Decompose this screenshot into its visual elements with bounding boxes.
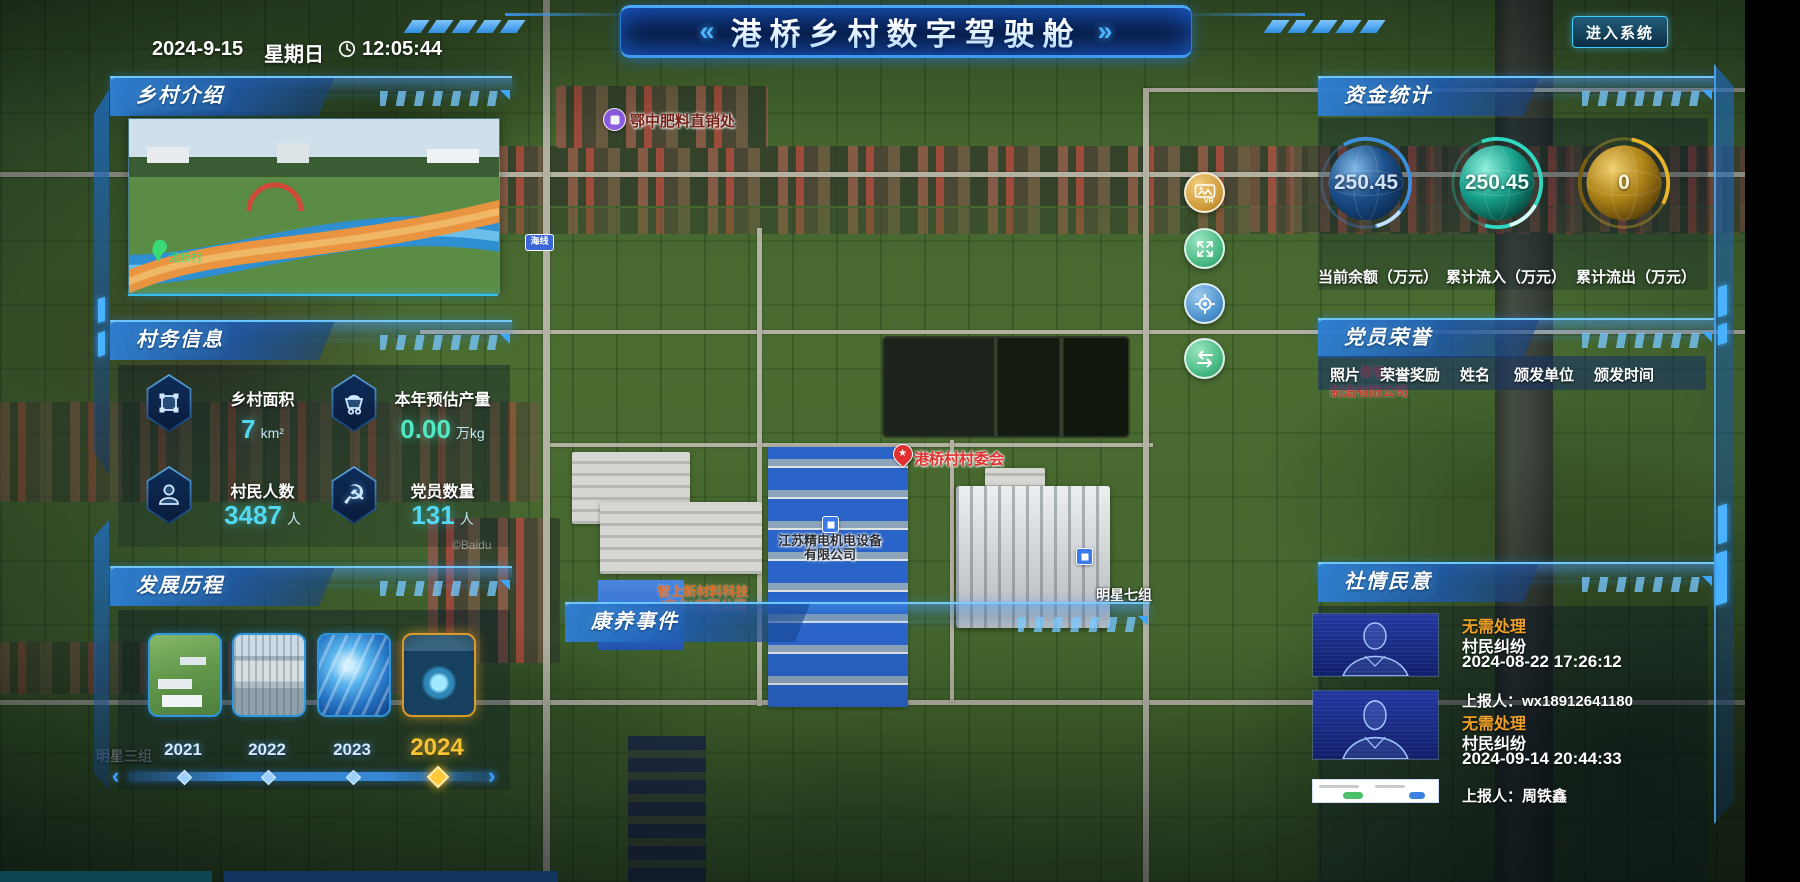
stat-value: 0.00万kg	[360, 414, 525, 445]
gauge-value: 0	[1576, 135, 1672, 231]
panel-title: 社情民意	[1318, 564, 1540, 600]
map-label-village-committee: 港桥村村委会	[914, 448, 1004, 469]
vr-panorama-button[interactable]: VR	[1184, 172, 1225, 213]
stat-value: 3487人	[180, 500, 345, 531]
frame-accent	[1718, 504, 1727, 545]
stat-value: 131人	[360, 500, 525, 531]
photo-location-label: 港桥村	[169, 250, 202, 264]
left-frame-decoration	[94, 90, 109, 475]
stat-unit: 人	[287, 511, 301, 527]
gauge-label-outflow: 累计流出（万元）	[1576, 266, 1696, 287]
scanline-overlay	[1313, 614, 1438, 676]
header-main: 党员荣誉	[1318, 318, 1540, 358]
gauge-current-balance: 250.45	[1318, 135, 1414, 231]
header-corner-decoration	[1138, 616, 1148, 626]
opinion-time: 2024-09-14 20:44:33	[1462, 749, 1622, 769]
opinion-item-photo-webpage[interactable]	[1312, 779, 1439, 803]
column-issuer: 颁发单位	[1514, 364, 1574, 385]
banner-wing-left	[408, 20, 521, 33]
column-issue-date: 颁发时间	[1594, 364, 1654, 385]
title-banner: « 港桥乡村数字驾驶舱 »	[620, 5, 1192, 58]
panel-header-development: 发展历程	[110, 566, 512, 604]
switch-refresh-button[interactable]	[1184, 338, 1225, 379]
map-road	[1143, 88, 1149, 882]
header-main: 乡村介绍	[110, 76, 335, 116]
header-main: 发展历程	[110, 566, 335, 606]
header-stripes-decoration	[380, 581, 498, 596]
swap-arrows-icon	[1195, 349, 1215, 369]
timeline-next-arrow[interactable]: ›	[488, 766, 495, 786]
header-stripes-decoration	[380, 335, 498, 350]
banner-line-left	[505, 13, 635, 16]
person-icon	[155, 481, 183, 509]
frame-accent	[1718, 285, 1727, 318]
company-line1: 智上新材料科技	[657, 584, 748, 599]
map-road	[950, 440, 954, 702]
svg-text:VR: VR	[1204, 198, 1214, 204]
current-time: 12:05:44	[362, 38, 442, 61]
column-photo: 照片	[1330, 364, 1360, 385]
frame-accent	[98, 297, 105, 323]
panel-title: 乡村介绍	[110, 78, 335, 114]
map-building	[985, 468, 1045, 488]
vr-picture-icon: VR	[1194, 182, 1216, 204]
header-corner-decoration	[1702, 576, 1712, 586]
clock-icon	[338, 40, 356, 58]
panel-header-public-opinion: 社情民意	[1318, 562, 1714, 600]
opinion-item-photo[interactable]	[1312, 613, 1439, 677]
header-corner-decoration	[500, 90, 510, 100]
opinion-item-photo[interactable]	[1312, 690, 1439, 760]
expand-arrows-icon	[1195, 239, 1215, 259]
map-label-fertilizer-shop: 鄂中肥料直销处	[630, 110, 735, 131]
gauge-total-inflow: 250.45	[1449, 135, 1545, 231]
header-corner-decoration	[500, 580, 510, 590]
honor-table-header-row: 照片 荣誉奖励 姓名 颁发单位 颁发时间	[1318, 356, 1706, 390]
panel-header-party-honor: 党员荣誉	[1318, 318, 1714, 356]
bottom-bar-decoration	[0, 871, 212, 882]
current-weekday: 星期日	[264, 38, 324, 67]
opinion-time: 2024-08-22 17:26:12	[1462, 652, 1622, 672]
panel-title: 发展历程	[110, 568, 335, 604]
stat-number: 3487	[224, 500, 282, 530]
header-main: 康养事件	[565, 602, 811, 642]
webpage-blue-button	[1409, 792, 1425, 799]
stat-unit: 万kg	[456, 425, 485, 441]
map-dark-rows	[628, 736, 706, 882]
dev-thumb-2021[interactable]	[148, 633, 222, 717]
header-stripes-decoration	[380, 91, 498, 106]
year-2022[interactable]: 2022	[232, 740, 302, 760]
company-poi-icon	[822, 516, 839, 533]
fullscreen-expand-button[interactable]	[1184, 228, 1225, 269]
area-icon	[155, 389, 183, 417]
map-factory-white	[600, 502, 762, 574]
opinion-reporter: 上报人：wx18912641180	[1462, 690, 1633, 711]
panel-title: 康养事件	[565, 604, 811, 640]
stat-label: 村民人数	[180, 478, 345, 502]
dev-thumb-2023[interactable]	[317, 633, 391, 717]
road-badge: 海线	[525, 234, 554, 251]
header-corner-decoration	[500, 334, 510, 344]
panel-header-village-intro: 乡村介绍	[110, 76, 512, 114]
year-2024[interactable]: 2024	[402, 734, 472, 762]
dashboard-root: 鄂中肥料直销处 ★ 港桥村村委会 江苏精电机电设备 有限公司 智上新材料科技 (…	[0, 0, 1800, 882]
stat-label: 党员数量	[360, 478, 525, 502]
poi-icon	[1076, 548, 1093, 565]
frame-accent	[98, 331, 105, 357]
panel-header-health-events: 康养事件	[565, 602, 1150, 640]
shop-poi-icon	[603, 108, 626, 131]
title-chevron-right-icon: »	[1098, 16, 1113, 47]
company-line2: 有限公司	[804, 547, 856, 562]
webpage-green-button	[1343, 792, 1363, 799]
header-main: 社情民意	[1318, 562, 1540, 602]
gauge-total-outflow: 0	[1576, 135, 1672, 231]
stat-number: 0.00	[400, 414, 451, 444]
banner-line-right	[1175, 13, 1305, 16]
stat-value: 7km²	[180, 414, 345, 445]
map-factory-blue-rows	[768, 447, 908, 707]
header-corner-decoration	[1702, 90, 1712, 100]
stat-unit: km²	[261, 425, 284, 441]
header-stripes-decoration	[1018, 617, 1136, 632]
village-photo-illustration: 港桥村	[129, 119, 499, 293]
panel-title: 党员荣誉	[1318, 320, 1540, 356]
enter-system-button[interactable]: 进入系统	[1572, 16, 1668, 48]
column-award: 荣誉奖励	[1380, 364, 1440, 385]
dev-thumb-2024[interactable]	[402, 633, 476, 717]
timeline-prev-arrow[interactable]: ‹	[112, 766, 119, 786]
header-stripes-decoration	[1582, 91, 1700, 106]
crosshair-target-icon	[1195, 294, 1215, 314]
panel-header-funds: 资金统计	[1318, 76, 1714, 114]
header-corner-decoration	[1702, 332, 1712, 342]
gauge-value: 250.45	[1318, 135, 1414, 231]
stat-number: 131	[411, 500, 454, 530]
column-name: 姓名	[1460, 364, 1490, 385]
stat-label: 本年预估产量	[360, 386, 525, 410]
stat-unit: 人	[460, 511, 474, 527]
current-date: 2024-9-15	[152, 38, 243, 61]
scanline-overlay	[1313, 691, 1438, 759]
stat-number: 7	[241, 414, 255, 444]
title-chevron-left-icon: «	[699, 16, 714, 47]
header-stripes-decoration	[1582, 333, 1700, 348]
panel-header-village-affairs: 村务信息	[110, 320, 512, 358]
photo-underline-decoration	[128, 294, 498, 296]
map-ponds	[882, 336, 1130, 438]
banner-wing-right	[1268, 20, 1381, 33]
map-label-company-jingdian: 江苏精电机电设备 有限公司	[770, 534, 890, 562]
gauge-label-balance: 当前余额（万元）	[1318, 266, 1438, 287]
map-road	[543, 0, 550, 882]
gauge-label-inflow: 累计流入（万元）	[1446, 266, 1566, 287]
panel-title: 资金统计	[1318, 78, 1540, 114]
header-main: 村务信息	[110, 320, 335, 360]
company-line1: 江苏精电机电设备	[778, 533, 882, 548]
bottom-bar-decoration	[224, 871, 558, 882]
frame-accent	[1716, 550, 1727, 606]
year-2021[interactable]: 2021	[148, 740, 218, 760]
header-main: 资金统计	[1318, 76, 1540, 116]
opinion-reporter: 上报人：周铁鑫	[1462, 785, 1567, 806]
locate-button[interactable]	[1184, 283, 1225, 324]
webpage-text-line	[1319, 785, 1359, 788]
page-title: 港桥乡村数字驾驶舱	[731, 9, 1082, 54]
left-frame-decoration	[94, 520, 109, 790]
dev-thumb-2022[interactable]	[232, 633, 306, 717]
frame-accent	[1718, 323, 1727, 346]
stat-label: 乡村面积	[180, 386, 345, 410]
webpage-text-line	[1375, 785, 1405, 788]
header-stripes-decoration	[1582, 577, 1700, 592]
gauge-value: 250.45	[1449, 135, 1545, 231]
year-2023[interactable]: 2023	[317, 740, 387, 760]
village-photo: 港桥村	[128, 118, 500, 294]
panel-title: 村务信息	[110, 322, 335, 358]
right-frame-decoration	[1714, 64, 1734, 824]
